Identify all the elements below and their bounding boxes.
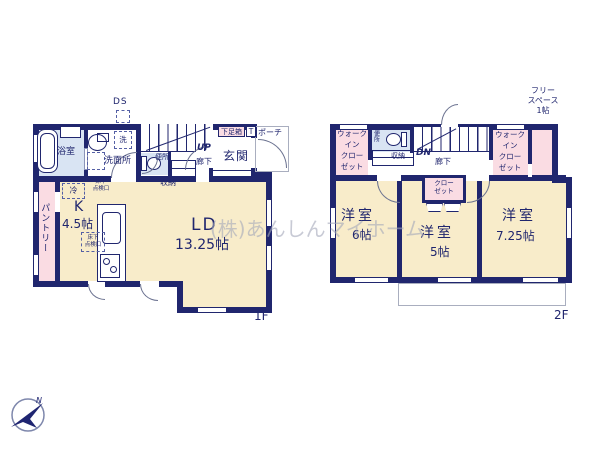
label-fridge: 冷 — [62, 186, 85, 196]
room-label-entrance: 玄関 — [223, 149, 249, 164]
room-label-pantry: パントリー — [38, 203, 49, 265]
ds-duct-box — [116, 110, 130, 123]
window — [566, 208, 572, 238]
label-storage-2f: 収納 — [391, 152, 405, 161]
wall-segment — [33, 176, 267, 182]
window — [266, 246, 272, 270]
north-arrow-icon — [11, 403, 43, 428]
room-label-bedroom3: 洋室 — [502, 208, 536, 226]
label-porch: ポーチ — [258, 128, 282, 138]
shoe-box-text: 下足箱 — [221, 127, 242, 137]
floor-plan: 浴室 PS DS 洗 洗面所 便所 UP 廊下 収納 下足箱 T ポーチ 玄関 … — [0, 0, 600, 449]
entrance-step-line — [213, 170, 251, 171]
room-label-kitchen: K — [74, 199, 83, 217]
room-label-toilet-1f: 便所 — [155, 153, 169, 162]
label-kitchen-size: 4.5帖 — [62, 217, 93, 232]
balcony — [398, 283, 566, 306]
door-arc — [140, 284, 158, 301]
door-opening — [528, 164, 532, 177]
pantry-opening — [55, 192, 60, 212]
stove-burner — [103, 258, 110, 265]
compass-n-label: N — [36, 396, 42, 405]
label-dn: DN — [416, 148, 431, 159]
label-hallway-1f: 廊下 — [196, 157, 212, 167]
door-arc — [88, 284, 105, 300]
wall-segment — [266, 172, 272, 313]
room-label-toilet-2f: 便所 — [372, 130, 380, 150]
label-free-space: フリー スペース 1帖 — [512, 86, 574, 116]
door-arc — [441, 104, 458, 125]
window — [198, 307, 226, 313]
room-living-dining-extension — [177, 281, 266, 307]
label-washer: 洗 — [114, 135, 132, 144]
bathtub-inner — [40, 133, 55, 169]
free-space-pointer — [546, 124, 558, 150]
bath-vanity — [60, 126, 81, 138]
closet-bifold-door — [426, 203, 443, 212]
door-opening — [196, 176, 209, 182]
label-bedroom2-size: 5帖 — [430, 245, 450, 260]
shoe-box-label: 下足箱 — [218, 126, 245, 137]
room-label-washroom: 洗面所 — [104, 156, 131, 167]
room-label-bedroom2: 洋室 — [420, 225, 454, 243]
t-text: T — [249, 127, 254, 136]
label-ds: DS — [113, 97, 128, 108]
toilet-tank-2f — [401, 132, 407, 147]
ps-pipe-box — [97, 133, 109, 142]
stove — [100, 254, 120, 278]
toilet-bowl-2f — [386, 133, 401, 146]
stove-burner — [110, 266, 117, 273]
label-underfloor-hatch: 床下 点検口 — [88, 179, 114, 193]
label-storage-1f: 収納 — [160, 178, 176, 188]
label-up: UP — [197, 143, 211, 154]
room-label-wic-right: ウォーク イン クロー ゼット — [492, 130, 528, 174]
room-label-wic-left: ウォーク イン クロー ゼット — [336, 129, 368, 173]
label-underfloor-hatch-2: 床下 点検口 — [81, 235, 105, 249]
label-hallway-2f: 廊下 — [435, 157, 451, 167]
room-label-bath: 浴室 — [57, 147, 75, 158]
closet-bifold-door — [444, 203, 461, 212]
t-label: T — [246, 126, 256, 137]
watermark: (株)あんしんマイホーム — [210, 213, 425, 242]
floor-label-1f: 1F — [254, 309, 269, 324]
underfloor-hatch-box — [87, 152, 105, 170]
label-bedroom3-size: 7.25帖 — [496, 229, 535, 244]
floor-label-2f: 2F — [554, 308, 569, 323]
compass: N — [5, 390, 53, 438]
label-ps: PS — [95, 123, 105, 133]
window — [355, 277, 388, 283]
label-closet: クロー ゼット — [425, 179, 463, 195]
